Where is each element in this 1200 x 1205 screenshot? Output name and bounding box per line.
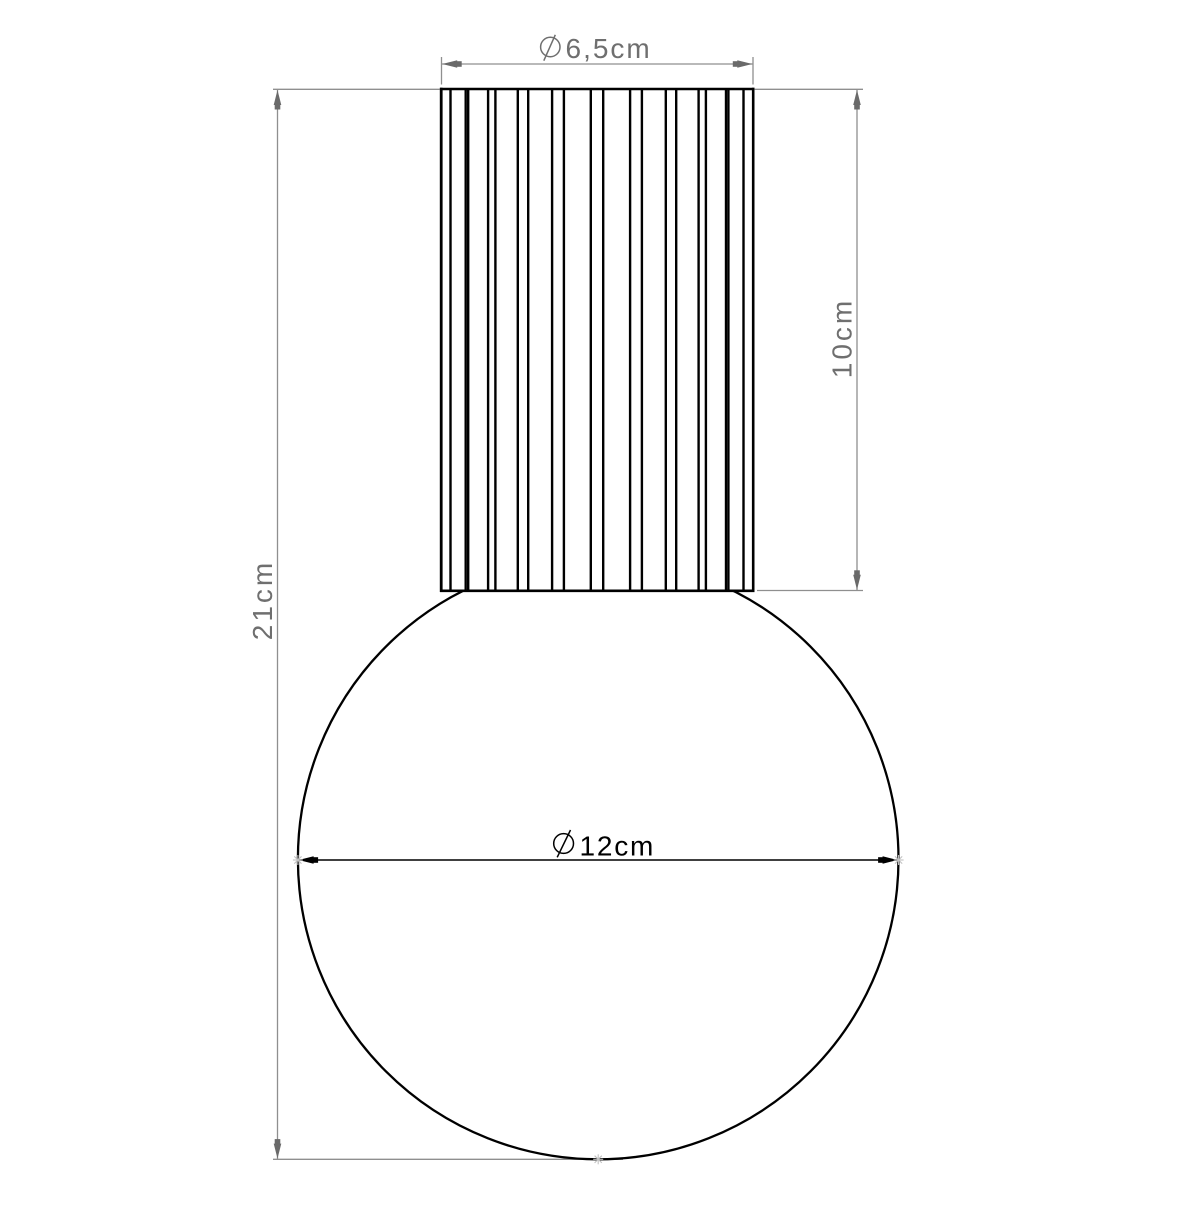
svg-text:6,5cm: 6,5cm: [566, 33, 652, 64]
svg-text:10cm: 10cm: [827, 298, 858, 378]
svg-text:21cm: 21cm: [247, 560, 278, 640]
svg-text:12cm: 12cm: [580, 831, 656, 862]
